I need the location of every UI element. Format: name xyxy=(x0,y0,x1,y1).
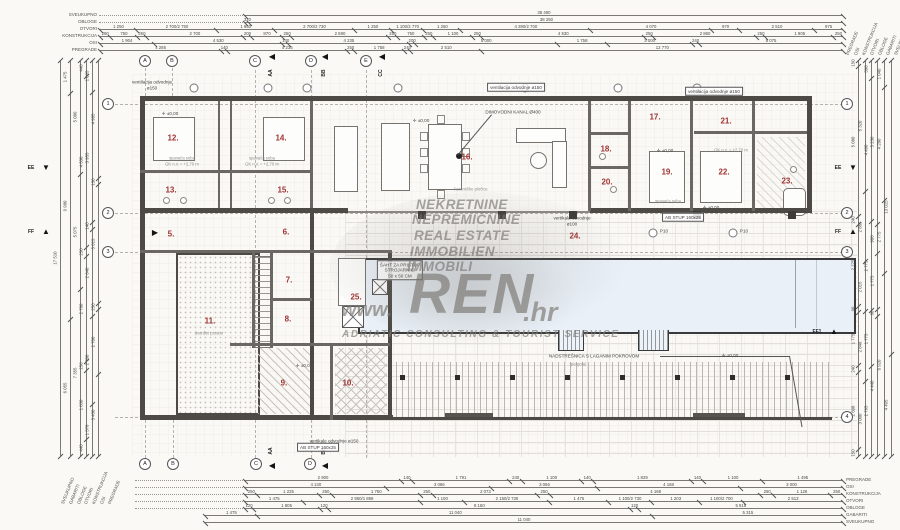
dim-value: 3 430 xyxy=(91,410,96,421)
section-label: EE xyxy=(28,165,35,171)
shaft-icon xyxy=(342,306,364,328)
elevation-mark: ✛ ±0,00 xyxy=(722,353,739,359)
dimension-leader xyxy=(99,22,245,23)
point-marker xyxy=(264,84,273,93)
partition-wall xyxy=(588,166,630,169)
dimension-leader xyxy=(135,494,245,495)
dim-value: 1 126 xyxy=(797,489,808,494)
dimension-row-label: SVEUKUPNO xyxy=(40,12,97,17)
dim-value: 11 040 xyxy=(449,510,462,515)
section-marker-triangle: ▲ xyxy=(830,328,838,336)
grid-axis-bubble-1: 1 xyxy=(841,98,853,110)
room-number: 6. xyxy=(283,228,290,237)
dimension-row-label: OSI xyxy=(40,40,97,45)
dim-value: 240 xyxy=(851,217,856,224)
dim-value: 2 015 xyxy=(858,281,863,292)
dim-value: 1 475 xyxy=(269,496,280,501)
room-number: 18. xyxy=(600,145,611,154)
dim-value: 8 160 xyxy=(474,503,485,508)
dimension-row-label: GABARITI xyxy=(846,512,867,517)
dim-value: 750 xyxy=(120,31,127,36)
dim-value: 5 515 xyxy=(735,503,746,508)
dim-value: 4 390/2 700 xyxy=(515,24,538,29)
room-number: 22. xyxy=(718,168,729,177)
dim-value: 250 xyxy=(79,362,84,369)
dim-segment: 2 700 xyxy=(99,310,104,374)
dim-value: 150 xyxy=(851,449,856,456)
dim-segment: 6 055 xyxy=(71,319,76,456)
dim-value: 250 xyxy=(423,489,430,494)
partition-wall xyxy=(690,101,693,211)
dim-value: 1 100 xyxy=(448,31,459,36)
dim-value: 2 775 xyxy=(864,261,869,272)
annotation-line: ventilacija odvodnje xyxy=(132,80,172,86)
section-label: FF xyxy=(28,229,34,235)
dim-segment: 2 900 xyxy=(245,481,401,486)
dim-value: 2 700 xyxy=(190,31,201,36)
dim-segment: 1 829 xyxy=(593,481,691,486)
dim-segment: 1 475 xyxy=(71,60,76,93)
annotation-label: ventilacija odvodnje ø150 xyxy=(487,83,545,92)
grid-line-a2 xyxy=(145,420,146,458)
pergola-posts xyxy=(400,375,832,380)
section-marker-triangle: ◀ xyxy=(322,462,328,470)
dim-segment: 5 515 xyxy=(639,509,843,514)
dim-value: 1 203 xyxy=(670,496,681,501)
dim-value: 3 000 xyxy=(644,38,655,43)
floor-plan-sheet: NEKRETNINE NEPREMIČNINE REAL ESTATE IMMO… xyxy=(0,0,900,530)
dim-segment: 5 015 xyxy=(99,184,104,304)
dim-value: 1 100 xyxy=(728,475,739,480)
room-number: 16. xyxy=(461,153,472,162)
dimension-chain: 11 040 xyxy=(205,522,843,528)
dim-value: 870 xyxy=(263,31,270,36)
dim-segment: 6 920 xyxy=(885,273,890,456)
dim-segment: 9 980 xyxy=(71,93,76,319)
dim-value: 440 xyxy=(79,65,84,72)
annotation-line: ventilacija odvodnje ø150 xyxy=(688,88,740,94)
room-caption: GK n.v. = +2,70 m xyxy=(245,162,279,167)
dim-value: 5 230 xyxy=(870,137,875,148)
wall xyxy=(140,208,348,213)
annotation-label: vertikale odvodnje ø150 xyxy=(310,438,359,444)
dim-segment: 4 495 xyxy=(892,354,897,456)
wall xyxy=(807,96,812,213)
dim-value: 1 775 xyxy=(851,334,856,345)
annotation-label: P10 xyxy=(740,228,748,234)
annotation-label: vertikala odvodnjeø100 xyxy=(553,216,590,227)
dim-value: 4 495 xyxy=(884,400,889,411)
elevation-mark: ✛ ±0,00 xyxy=(413,118,430,124)
room-number: 15. xyxy=(277,186,288,195)
dim-value: 2 510 xyxy=(441,45,452,50)
partition-wall xyxy=(628,101,631,211)
dim-value: 5 315 xyxy=(743,510,754,515)
section-marker-triangle: ▲ xyxy=(849,228,857,236)
dim-value: 1 775 xyxy=(870,276,875,287)
coffee-table-icon xyxy=(530,152,547,169)
dim-value: 6 920 xyxy=(877,359,882,370)
dim-value: 240 xyxy=(512,475,519,480)
grid-axis-bubble-3: 3 xyxy=(841,246,853,258)
dim-value: 250 xyxy=(322,489,329,494)
dim-segment: 4 285 xyxy=(100,51,221,56)
point-marker xyxy=(394,84,403,93)
dimension-leader xyxy=(99,15,245,16)
room-caption: GK n.v. = +2,70 m xyxy=(714,148,748,153)
dim-value: 9 980 xyxy=(63,201,68,212)
dim-segment: 2 860 xyxy=(654,37,757,42)
grid-axis-bubble-4: 4 xyxy=(841,411,853,423)
dim-segment: 120 xyxy=(245,509,253,514)
dim-segment: 1 750 xyxy=(332,495,420,500)
dim-value: 140 xyxy=(85,222,90,229)
dim-segment: 1 040 xyxy=(885,60,890,87)
wall xyxy=(310,213,314,420)
section-label: BB xyxy=(321,69,327,76)
dim-tick xyxy=(58,453,64,459)
grid-axis-bubble-C: C xyxy=(250,458,262,470)
dim-value: 2 150/2 730 xyxy=(496,496,519,501)
annotation-label: NADSTREŠNICA S LAGANIM POKROVOM xyxy=(549,353,639,359)
dim-value: 1 805 xyxy=(281,503,292,508)
grid-line-2 xyxy=(115,213,843,214)
dim-value: 2 865 xyxy=(858,221,863,232)
dim-value: 2 780 xyxy=(79,303,84,314)
dim-tick xyxy=(68,453,74,459)
chair-icon xyxy=(462,164,470,173)
annotation-line: P10 xyxy=(740,228,748,234)
dim-value: 4 530 xyxy=(213,38,224,43)
dimension-chain: 2501 2252501 7502502 0732504 1682501 126… xyxy=(245,494,843,500)
dim-segment: 11 040 xyxy=(258,516,653,521)
dim-value: 1 250 xyxy=(113,24,124,29)
room-caption: keramičke pločice xyxy=(454,187,487,192)
dim-segment: 8 160 xyxy=(328,509,630,514)
dim-segment: 1 475 xyxy=(550,502,609,507)
column xyxy=(498,211,506,219)
dimension-column-label: OSI xyxy=(853,47,861,56)
room-number: 14. xyxy=(275,134,286,143)
grid-axis-bubble-D: D xyxy=(305,55,317,67)
dim-segment: 5 315 xyxy=(653,516,843,521)
dim-segment: 250 xyxy=(245,495,258,500)
dim-value: 7 355 xyxy=(73,367,78,378)
dim-segment: 5 000 xyxy=(415,44,557,49)
grid-axis-bubble-2: 2 xyxy=(841,207,853,219)
dim-value: 1 570 xyxy=(85,425,90,436)
dim-segment: 1 775 xyxy=(878,253,883,309)
dim-segment: 140 xyxy=(692,481,704,486)
dim-value: 1 475 xyxy=(63,71,68,82)
annotation-line: ø150 xyxy=(132,85,172,91)
dimension-chain: 1 2502 700/2 7501 9502 700/2 7301 2501 1… xyxy=(100,29,843,35)
point-marker xyxy=(190,84,199,93)
dim-value: 3 000 xyxy=(858,414,863,425)
dim-segment: 250 xyxy=(319,495,332,500)
dim-segment: 2 513 xyxy=(743,502,843,507)
grid-axis-bubble-B: B xyxy=(167,458,179,470)
dim-value: 1 950 xyxy=(240,24,251,29)
annotation-line: 50 x 50 CM xyxy=(380,273,420,279)
grid-line-b2 xyxy=(173,420,174,458)
dim-value: 2 700/2 730 xyxy=(303,24,326,29)
dim-segment: 120 xyxy=(320,509,328,514)
dimension-leader xyxy=(135,508,245,509)
dim-value: 4 235 xyxy=(282,45,293,50)
dim-value: 3 066 xyxy=(539,482,550,487)
grid-line-1 xyxy=(115,104,843,105)
room-number: 20. xyxy=(601,178,612,187)
dim-segment: 250 xyxy=(761,495,774,500)
dimension-leader xyxy=(135,487,245,488)
dim-segment: 1 791 xyxy=(413,481,509,486)
dim-value: 1 100/2 770 xyxy=(396,24,419,29)
point-marker xyxy=(614,84,623,93)
grid-axis-bubble-1: 1 xyxy=(102,98,114,110)
column xyxy=(788,211,796,219)
dim-value: 2 900 xyxy=(318,475,329,480)
dim-segment: 13 015 xyxy=(892,60,897,354)
annotation-label: ventilacija odvodnje ø150 xyxy=(685,87,743,96)
dim-value: 5 075 xyxy=(73,227,78,238)
dim-segment: 250 xyxy=(388,37,397,42)
room-caption: GK n.v. = +2,70 m xyxy=(165,162,199,167)
dim-value: 440 xyxy=(79,444,84,451)
dim-value: 90 xyxy=(851,307,856,312)
room-number: 11. xyxy=(205,317,216,326)
dim-segment: 1 100 xyxy=(421,502,465,507)
dimension-chain-vertical: 5 2309081 775604 440 xyxy=(877,60,883,456)
pergola-rafters xyxy=(390,362,832,418)
room-number: 10. xyxy=(342,379,353,388)
dim-value: 5 320 xyxy=(858,120,863,131)
annotation-line: STROJARNICI xyxy=(380,267,420,273)
section-marker-triangle: ◀ xyxy=(269,462,275,470)
grid-axis-bubble-3: 3 xyxy=(102,246,114,258)
grid-axis-bubble-E: E xyxy=(360,55,372,67)
room-number: 8. xyxy=(285,315,292,324)
room-number: 7. xyxy=(286,276,293,285)
dimension-row-label: OBLOGE xyxy=(846,505,865,510)
annotation-label: ventilacija odvodnjeø150 xyxy=(132,80,172,91)
annotation-line: vertikale odvodnje ø150 xyxy=(310,438,359,444)
dim-segment: 12 770 xyxy=(482,51,843,56)
dim-segment: 4 235 xyxy=(227,51,347,56)
dim-segment: 4 168 xyxy=(597,488,740,493)
dim-value: 1 005 xyxy=(85,71,90,82)
chair-icon xyxy=(420,164,428,173)
dim-value: 5 015 xyxy=(91,239,96,250)
chair-icon xyxy=(437,190,445,199)
partition-wall xyxy=(694,131,807,134)
dim-value: 6 055 xyxy=(63,382,68,393)
dim-segment: 140 xyxy=(581,481,593,486)
annotation-line: vertikala odvodnje xyxy=(553,216,590,222)
dim-value: 1 750 xyxy=(371,489,382,494)
dim-value: 975 xyxy=(825,24,832,29)
dim-value: 4 530 xyxy=(79,156,84,167)
pool-lane-line xyxy=(795,260,796,328)
dim-value: 3 955 xyxy=(85,152,90,163)
kitchen-counter-icon xyxy=(334,126,358,192)
glass-wall xyxy=(348,211,590,213)
dim-value: 4 168 xyxy=(650,489,661,494)
partition-wall xyxy=(270,253,273,348)
dim-segment: 3 066 xyxy=(387,488,492,493)
dimension-chain: 1 9044 5301404 2352005 0001 7583 0002405… xyxy=(100,43,843,49)
dim-value: 3 000 xyxy=(786,482,797,487)
dim-segment: 240 xyxy=(509,481,522,486)
dimension-row-label-rotated: OSI xyxy=(99,496,107,505)
dim-segment: 2 073 xyxy=(433,495,538,500)
dim-value: 4 285 xyxy=(155,45,166,50)
dimension-chain: 2907502502 7002008702502 6902507502501 1… xyxy=(100,36,843,42)
room-number: 25. xyxy=(350,293,361,302)
elevation-mark: ✛ ±0,00 xyxy=(162,111,179,117)
dim-segment: 3 000 xyxy=(607,44,692,49)
grid-axis-bubble-A: A xyxy=(139,55,151,67)
kitchen-island-icon xyxy=(381,123,410,191)
dim-segment: 1 100 xyxy=(703,481,762,486)
grid-line-b xyxy=(172,68,173,96)
dimension-leader xyxy=(135,501,245,502)
dim-segment: 3 430 xyxy=(99,374,104,456)
swimming-pool xyxy=(358,258,856,334)
dim-value: 38 490 xyxy=(537,10,550,15)
dim-value: 4 440 xyxy=(870,381,875,392)
dim-value: 2 775 xyxy=(877,232,882,243)
wall xyxy=(140,213,145,420)
dim-value: 908 xyxy=(870,235,875,242)
dim-value: 1 100 xyxy=(437,496,448,501)
dimension-row-label: OBLOGE xyxy=(40,19,97,24)
grid-axis-bubble-B: B xyxy=(166,55,178,67)
annotation-label: P10 xyxy=(660,228,668,234)
dim-value: 4 168 xyxy=(663,482,674,487)
grid-axis-bubble-A: A xyxy=(139,458,151,470)
dimension-chain-vertical: 13 0154 495 xyxy=(891,60,897,456)
dim-value: 2 775 xyxy=(851,260,856,271)
dim-segment: 2 510 xyxy=(411,51,482,56)
dim-value: 1 475 xyxy=(574,496,585,501)
dimension-row-label: KONSTRUKCIJA xyxy=(846,491,881,496)
dim-value: 5 080 xyxy=(851,136,856,147)
pool-shelf-line xyxy=(816,260,817,328)
room-number: 17. xyxy=(649,113,660,122)
dim-value: 2 700 xyxy=(85,355,90,366)
dim-value: 150 xyxy=(851,60,856,67)
dim-value: 970 xyxy=(722,24,729,29)
wall xyxy=(140,96,145,213)
annotation-line: ventilacija odvodnje ø150 xyxy=(490,84,542,90)
wc-icon xyxy=(163,197,170,204)
dimension-row-label-rotated: PREGRADE xyxy=(107,480,121,505)
dim-value: 12 770 xyxy=(656,45,669,50)
partition-wall xyxy=(230,343,390,346)
dim-value: 17 510 xyxy=(53,251,58,264)
dim-segment: 250 xyxy=(424,37,433,42)
room-caption: dvorišni prostor xyxy=(195,331,224,336)
partition-wall xyxy=(310,250,392,253)
partition-wall xyxy=(310,101,313,208)
dim-value: 1 475 xyxy=(226,510,237,515)
dimension-row-label: PREGRADE xyxy=(40,47,97,52)
dim-value: 2 700/2 750 xyxy=(166,24,189,29)
grid-axis-bubble-2: 2 xyxy=(102,207,114,219)
dimension-chain: 4 2851404 2352501 7582402 51012 770 xyxy=(100,50,843,56)
pool-stairs xyxy=(638,330,669,351)
room-caption: (pergola) xyxy=(570,362,587,367)
chair-icon xyxy=(420,148,428,157)
partition-wall xyxy=(252,253,255,348)
room-number: 5. xyxy=(168,230,175,239)
dimension-row-label: PREGRADE xyxy=(846,477,871,482)
annotation-label: ŠAHT ZA PRISTUPSTROJARNICI50 x 50 CM xyxy=(377,260,423,280)
section-label: EE xyxy=(835,165,842,171)
dim-value: 13 015 xyxy=(884,201,889,214)
dimension-chain: 32038 250 xyxy=(245,22,843,28)
dim-value: 11 040 xyxy=(518,517,531,522)
dim-value: 250 xyxy=(833,489,840,494)
section-label: CC xyxy=(378,69,384,76)
dim-value: 1 775 xyxy=(864,333,869,344)
dim-segment: 250 xyxy=(137,37,146,42)
dim-value: 1 905 xyxy=(794,31,805,36)
room-caption: spavaća soba xyxy=(655,199,681,204)
dim-value: 130 xyxy=(91,178,96,185)
dim-value: 4 530 xyxy=(558,31,569,36)
room-number: 13. xyxy=(165,186,176,195)
section-label: FF1 xyxy=(813,329,822,335)
dim-value: 4 070 xyxy=(646,24,657,29)
dim-value: 1 495 xyxy=(797,475,808,480)
dim-segment: 250 xyxy=(538,495,551,500)
dim-value: 38 250 xyxy=(540,17,553,22)
sofa-icon xyxy=(552,141,567,188)
bed-icon xyxy=(700,151,742,203)
dim-value: 5 080 xyxy=(73,112,78,123)
dim-segment: 1 126 xyxy=(774,495,831,500)
dimension-row-label: OTVORI xyxy=(40,26,97,31)
dim-segment: 1 203 xyxy=(652,502,700,507)
point-marker xyxy=(303,84,312,93)
grid-axis-bubble-C: C xyxy=(249,55,261,67)
dim-value: 4 985 xyxy=(91,114,96,125)
wc-icon xyxy=(599,153,606,160)
dim-segment: 1 100 xyxy=(433,37,473,42)
dim-value: 1 830 xyxy=(79,400,84,411)
section-marker-triangle: ◀ xyxy=(269,53,275,61)
room-number: 9. xyxy=(281,379,288,388)
dim-segment: 38 250 xyxy=(250,23,843,28)
annotation-label: AB STUP 160x25 xyxy=(297,443,339,452)
dimension-row-label: KONSTRUKCIJA xyxy=(40,33,97,38)
dim-value: 2 795 xyxy=(864,406,869,417)
dimension-chain: 1 4752 950/1 8981 1002 150/2 7301 4751 1… xyxy=(245,501,843,507)
dim-value: 2 510 xyxy=(772,24,783,29)
section-marker-triangle: ◀ xyxy=(322,53,328,61)
dim-segment: 250 xyxy=(420,495,433,500)
dim-segment: 17 510 xyxy=(61,60,66,456)
dim-segment: 1 100 xyxy=(522,481,581,486)
dim-value: 250 xyxy=(91,303,96,310)
access-shaft-icon xyxy=(372,279,388,295)
dim-value: 1 758 xyxy=(577,38,588,43)
room-caption: spavaća soba xyxy=(249,156,275,161)
dim-value: 1 250 xyxy=(368,24,379,29)
dim-value: 2 950/1 898 xyxy=(351,496,374,501)
